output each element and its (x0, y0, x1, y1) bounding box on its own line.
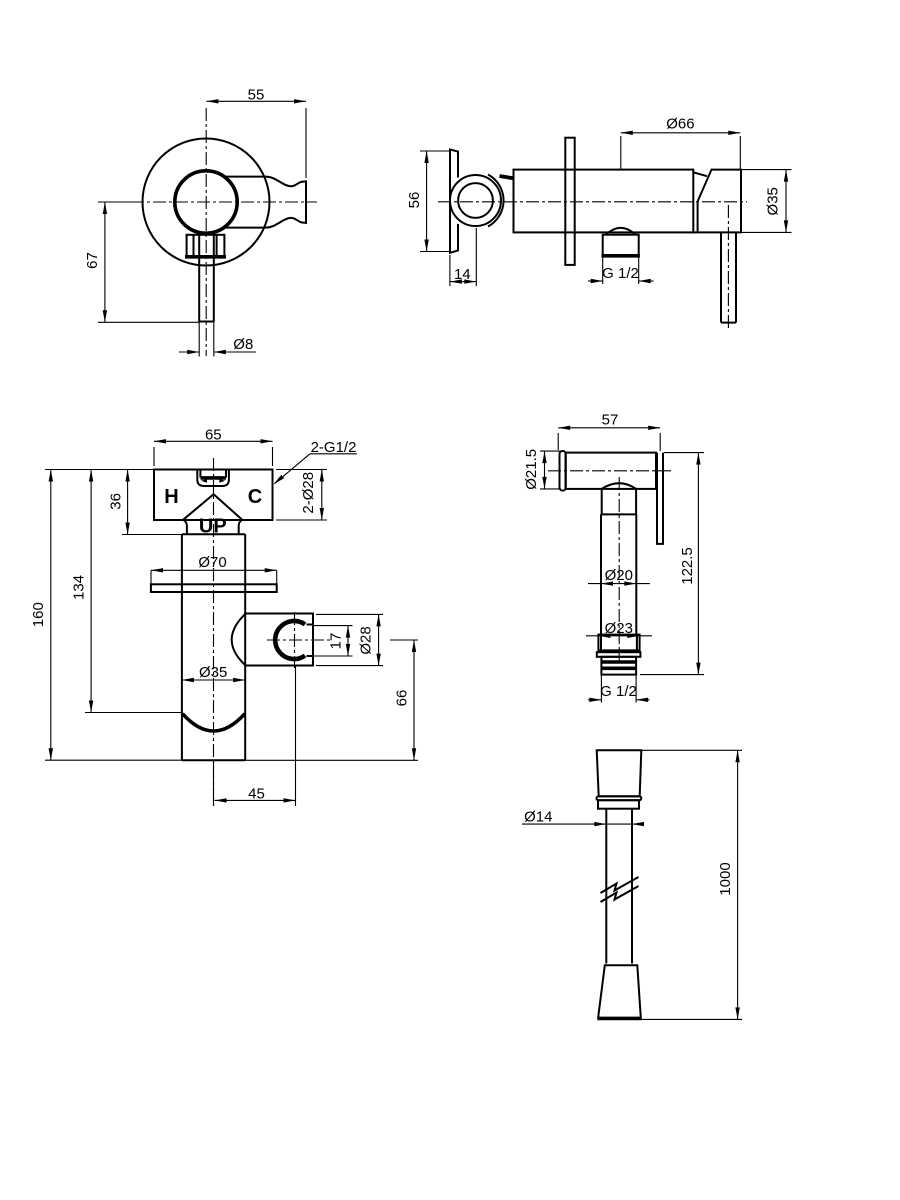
svg-text:67: 67 (84, 252, 101, 269)
svg-text:17: 17 (328, 633, 345, 650)
svg-text:65: 65 (205, 427, 222, 444)
svg-text:122.5: 122.5 (679, 547, 696, 585)
svg-text:14: 14 (454, 266, 471, 283)
svg-text:55: 55 (248, 87, 265, 104)
svg-text:1000: 1000 (717, 862, 734, 895)
svg-text:H: H (164, 486, 178, 508)
svg-text:Ø35: Ø35 (199, 664, 227, 681)
svg-text:Ø70: Ø70 (198, 554, 226, 571)
svg-text:45: 45 (248, 786, 265, 803)
svg-text:57: 57 (602, 411, 619, 428)
svg-text:Ø21.5: Ø21.5 (523, 449, 540, 490)
svg-text:G 1/2: G 1/2 (602, 265, 639, 282)
svg-text:Ø14: Ø14 (524, 808, 552, 825)
svg-text:Ø23: Ø23 (605, 620, 633, 637)
svg-text:Ø35: Ø35 (764, 187, 781, 215)
svg-text:134: 134 (71, 575, 88, 600)
svg-text:160: 160 (30, 602, 47, 627)
svg-text:56: 56 (406, 192, 423, 209)
svg-text:Ø20: Ø20 (605, 567, 633, 584)
svg-text:36: 36 (107, 493, 124, 510)
svg-text:Ø28: Ø28 (358, 626, 375, 654)
svg-text:Ø66: Ø66 (666, 115, 694, 132)
svg-text:2-Ø28: 2-Ø28 (300, 472, 317, 514)
svg-text:66: 66 (394, 690, 411, 707)
svg-text:Ø8: Ø8 (233, 336, 253, 353)
svg-text:G 1/2: G 1/2 (600, 683, 637, 700)
svg-text:C: C (248, 486, 262, 508)
